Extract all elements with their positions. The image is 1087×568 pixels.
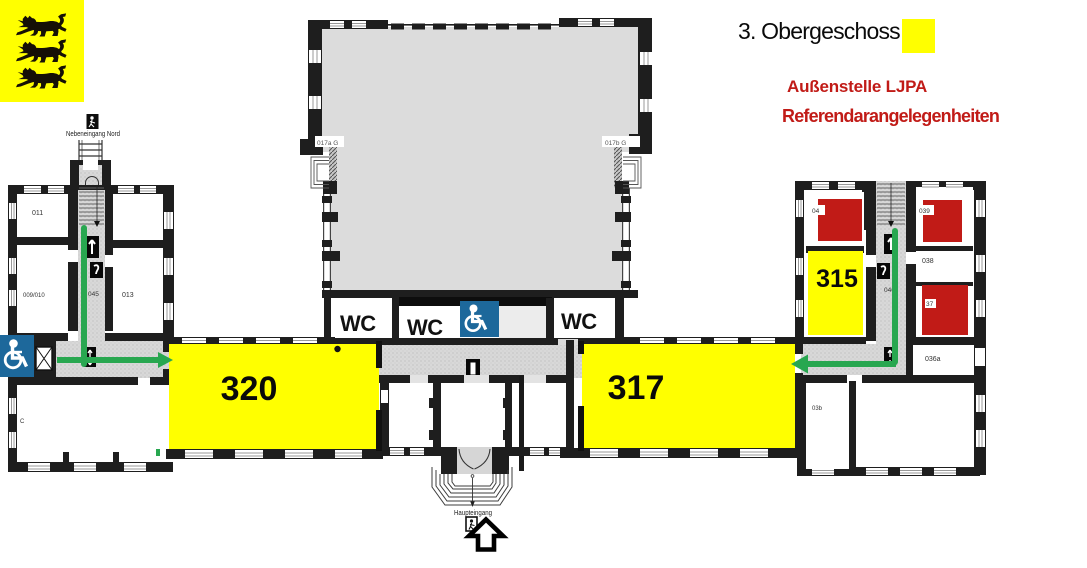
- svg-text:Außenstelle LJPA: Außenstelle LJPA: [787, 77, 927, 96]
- svg-text:C: C: [20, 419, 25, 425]
- svg-text:036a: 036a: [925, 356, 941, 363]
- svg-text:WC: WC: [561, 309, 597, 334]
- svg-text:013: 013: [122, 292, 134, 299]
- svg-text:WC: WC: [407, 315, 443, 340]
- svg-text:04: 04: [812, 208, 820, 215]
- svg-text:Nebeneingang Nord: Nebeneingang Nord: [66, 131, 120, 138]
- svg-text:3. Obergeschoss: 3. Obergeschoss: [738, 18, 900, 44]
- svg-text:017a G: 017a G: [317, 140, 338, 147]
- svg-text:315: 315: [816, 265, 858, 293]
- svg-text:Referendarangelegenheiten: Referendarangelegenheiten: [782, 106, 999, 126]
- svg-text:039: 039: [919, 208, 930, 215]
- svg-text:03b: 03b: [812, 406, 823, 412]
- svg-text:009/010: 009/010: [23, 293, 45, 299]
- svg-text:37: 37: [926, 301, 934, 308]
- svg-text:Haupteingang: Haupteingang: [454, 510, 492, 517]
- svg-text:038: 038: [922, 258, 934, 265]
- svg-text:045: 045: [88, 291, 99, 298]
- svg-text:317: 317: [608, 369, 665, 407]
- svg-text:320: 320: [221, 370, 278, 408]
- svg-text:011: 011: [32, 210, 43, 217]
- svg-text:WC: WC: [340, 311, 376, 336]
- svg-text:017b G: 017b G: [605, 140, 626, 147]
